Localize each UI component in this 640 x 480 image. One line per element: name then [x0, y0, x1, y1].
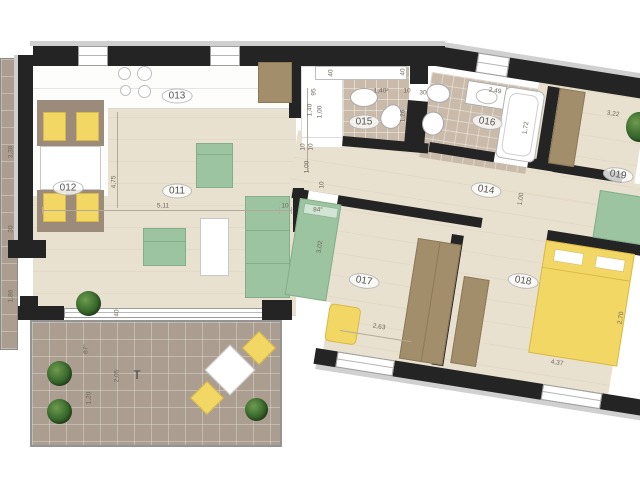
dim-living-10: 10 [281, 203, 288, 210]
double-bed-room018 [528, 240, 635, 367]
dim-hall-100: 1,00 [304, 161, 311, 174]
cooktop-burner-icon [138, 85, 151, 98]
left-wall [18, 55, 33, 243]
plant-icon [245, 398, 268, 421]
dim-hall-10a: 10 [300, 143, 307, 150]
dim-hall-10: 10 [319, 181, 326, 188]
cooktop-burner-icon [118, 67, 131, 80]
sofa-top [196, 143, 233, 188]
dim-bed018-270: 2,70 [617, 311, 626, 325]
room-label-012: 012 [53, 181, 84, 196]
room-label-015: 015 [349, 115, 380, 130]
dim-bath015-area: 1,40² [374, 88, 389, 95]
living-south-wall-right [262, 300, 292, 320]
dim-terrace-door: 40 [114, 309, 121, 316]
dining-chair [76, 112, 99, 141]
dim-living-height: 4,75 [111, 176, 118, 189]
dining-chair [43, 112, 66, 141]
dining-chair [76, 193, 99, 222]
bath-divider-wall-upper [410, 64, 428, 84]
dim-living-width: 5,11 [157, 203, 169, 210]
plant-icon [47, 361, 72, 386]
dim-balcony-width: 30 [8, 225, 15, 232]
dimension-line [42, 210, 292, 211]
dim-balcony-length: 3,38 [8, 146, 15, 159]
window-bath016 [475, 53, 510, 78]
sofa-bottom [143, 228, 186, 266]
dim-terrace-width: 2,05 [114, 370, 121, 383]
dim-shelf-40a: 40 [328, 69, 335, 76]
dimension-tick [291, 207, 292, 214]
plant-icon [47, 399, 72, 424]
terrace-label: T [133, 368, 140, 382]
terrace-floor [30, 320, 282, 447]
left-wall-step [8, 240, 46, 258]
dim-bath015-10: 10 [403, 88, 410, 95]
dim-shelf-40b: 40 [400, 68, 407, 75]
dim-terrace-angle: 87° [83, 344, 90, 354]
floorplan: 013 012 011 015 016 014 017 018 019 T 3,… [0, 0, 640, 480]
dim-bath015-126: 1,26 [400, 110, 407, 123]
bed-room019 [592, 190, 640, 246]
cooktop-burner-icon [137, 66, 152, 81]
window-kitchen-left [78, 46, 108, 66]
kitchen-counter-line [33, 88, 296, 89]
armchair-room017 [324, 303, 362, 346]
dim-hall-10b: 10 [308, 143, 315, 150]
wardrobe-kitchen [258, 62, 292, 103]
room-label-011: 011 [162, 184, 192, 199]
dim-angle-84: 84° [313, 207, 323, 214]
room-label-013: 013 [162, 89, 193, 104]
dining-chair [43, 193, 66, 222]
dim-balcony-depth: 1,86 [8, 290, 15, 303]
sofa-long [245, 196, 290, 298]
dim-niche-100: 1,00 [317, 106, 324, 119]
dimension-tick [279, 207, 280, 214]
dimension-line [117, 112, 118, 208]
coffee-table [200, 218, 229, 276]
plant-icon [76, 291, 101, 316]
living-south-wall-left [18, 306, 64, 320]
window-kitchen-right [210, 46, 240, 66]
dimension-tick [42, 207, 43, 214]
cooktop-burner-icon [120, 85, 131, 96]
dim-bath015-30: 30 [419, 90, 426, 97]
dim-niche-140: 1,40 [307, 104, 314, 117]
dim-niche-95: 95 [311, 88, 318, 95]
dim-terrace-depth: 1,20 [86, 392, 93, 405]
